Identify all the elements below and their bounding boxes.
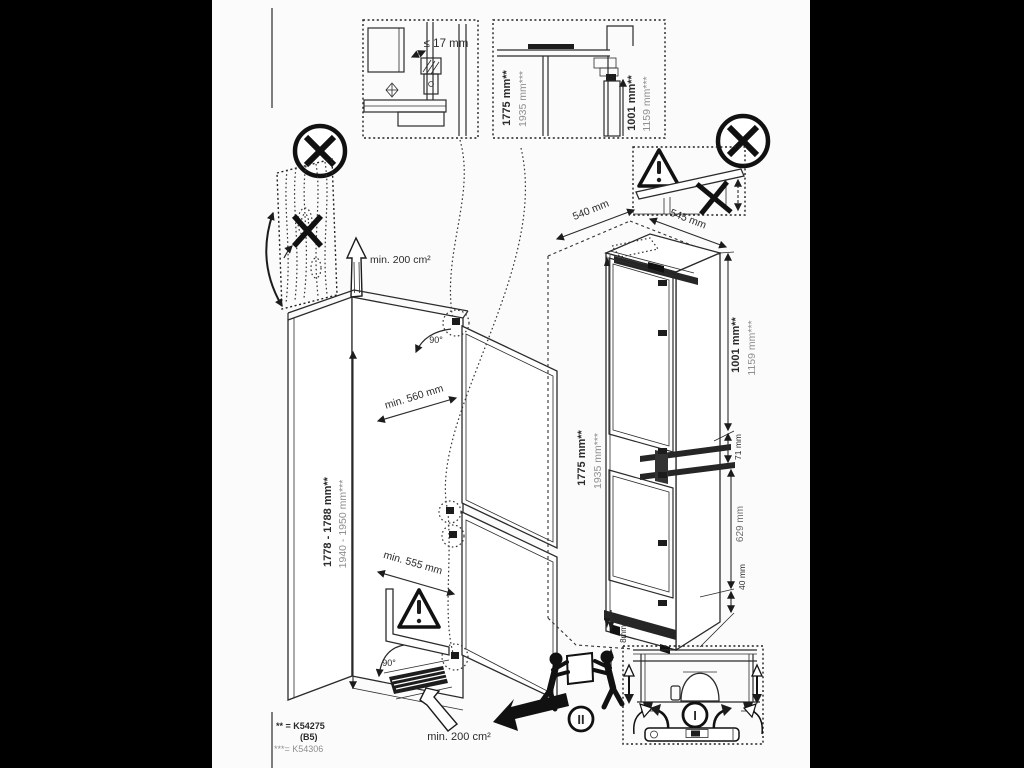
hinge-zone-label: 71 mm xyxy=(733,434,743,460)
prohibition-icon-left xyxy=(295,126,345,176)
step-two-label: II xyxy=(577,712,584,727)
detail-upper-primary-label: 1001 mm** xyxy=(626,74,638,130)
appliance-height-secondary-label: 1935 mm*** xyxy=(592,433,604,489)
upper-section-secondary-label: 1159 mm*** xyxy=(746,320,758,375)
bottom-vent-area-label: min. 200 cm² xyxy=(427,731,491,743)
spirit-level-icon xyxy=(645,728,739,741)
detail-upper-secondary-label: 1159 mm*** xyxy=(641,76,653,131)
floor-gap-label: 8mm xyxy=(619,625,628,643)
manual-page: ≤ 17 mm 1775 mm** 1935 mm*** 1001 mm** 1… xyxy=(0,0,1024,768)
door-angle-top-label: 90° xyxy=(429,335,443,345)
footnote-line1: ** = K54275 xyxy=(276,721,325,731)
upper-section-primary-label: 1001 mm** xyxy=(730,316,742,372)
footnote-line2: (B5) xyxy=(300,732,318,742)
top-vent-area-label: min. 200 cm² xyxy=(370,254,431,266)
niche-height-secondary-label: 1940 - 1950 mm*** xyxy=(337,480,349,569)
step-one-label: I xyxy=(693,708,697,723)
detail-height-primary-label: 1775 mm** xyxy=(501,69,513,125)
bottom-gap-label: 40 mm xyxy=(737,564,747,590)
niche-height-primary-label: 1778 - 1788 mm** xyxy=(322,476,334,567)
hinge-gap-label: ≤ 17 mm xyxy=(424,38,469,50)
lower-section-label: 629 mm xyxy=(735,506,746,542)
appliance-height-primary-label: 1775 mm** xyxy=(576,429,588,485)
prohibition-icon-right xyxy=(718,116,768,166)
mounting-bracket-icon xyxy=(528,44,574,49)
footnote-line3: ***= K54306 xyxy=(274,744,323,754)
detail-height-secondary-label: 1935 mm*** xyxy=(517,71,529,127)
installation-diagram: ≤ 17 mm 1775 mm** 1935 mm*** 1001 mm** 1… xyxy=(0,0,1024,768)
carried-box xyxy=(567,653,593,684)
